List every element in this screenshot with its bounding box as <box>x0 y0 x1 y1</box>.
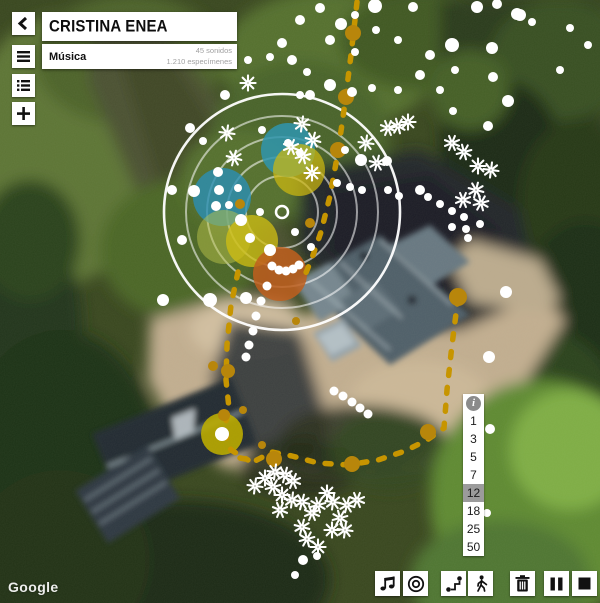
page-title: CRISTINA ENEA <box>42 17 168 35</box>
scale-value-5[interactable]: 5 <box>463 448 484 466</box>
pause-icon <box>550 577 563 591</box>
menu-button[interactable] <box>12 45 35 68</box>
list-icon <box>17 80 30 91</box>
pause-button[interactable] <box>544 571 569 596</box>
map-app: CRISTINA ENEA Música 45 sonidos 1.210 es… <box>0 0 600 603</box>
plus-icon <box>17 107 30 120</box>
route-icon <box>445 575 463 593</box>
stat-sounds: 45 sonidos <box>196 46 232 55</box>
scale-value-1[interactable]: 1 <box>463 412 484 430</box>
route-button[interactable] <box>441 571 466 596</box>
title-bar: CRISTINA ENEA <box>42 12 237 41</box>
stat-specimens: 1.210 especímenes <box>167 57 232 66</box>
value-scale: i 135712182550 <box>463 394 484 556</box>
stats-text: 45 sonidos 1.210 especímenes <box>167 46 237 67</box>
back-button[interactable] <box>12 12 35 35</box>
scale-value-18[interactable]: 18 <box>463 502 484 520</box>
trash-icon <box>515 575 530 592</box>
stop-icon <box>578 577 591 590</box>
music-note-icon <box>379 575 396 592</box>
scale-value-7[interactable]: 7 <box>463 466 484 484</box>
info-icon: i <box>466 396 481 411</box>
stop-button[interactable] <box>572 571 597 596</box>
hamburger-icon <box>17 51 30 62</box>
scale-value-12[interactable]: 12 <box>463 484 484 502</box>
scale-value-3[interactable]: 3 <box>463 430 484 448</box>
scale-value-50[interactable]: 50 <box>463 538 484 556</box>
category-label: Música <box>42 51 86 63</box>
walk-icon <box>473 575 489 593</box>
back-arrow-icon <box>17 17 30 30</box>
music-button[interactable] <box>375 571 400 596</box>
subtitle-bar: Música 45 sonidos 1.210 especímenes <box>42 44 237 69</box>
google-watermark: Google <box>8 579 59 595</box>
legend-list-button[interactable] <box>12 74 35 97</box>
trash-button[interactable] <box>510 571 535 596</box>
scale-info-button[interactable]: i <box>463 394 484 412</box>
data-overlay <box>0 0 600 603</box>
walk-button[interactable] <box>468 571 493 596</box>
target-icon <box>407 575 425 593</box>
zoom-in-button[interactable] <box>12 102 35 125</box>
scale-value-25[interactable]: 25 <box>463 520 484 538</box>
target-button[interactable] <box>403 571 428 596</box>
